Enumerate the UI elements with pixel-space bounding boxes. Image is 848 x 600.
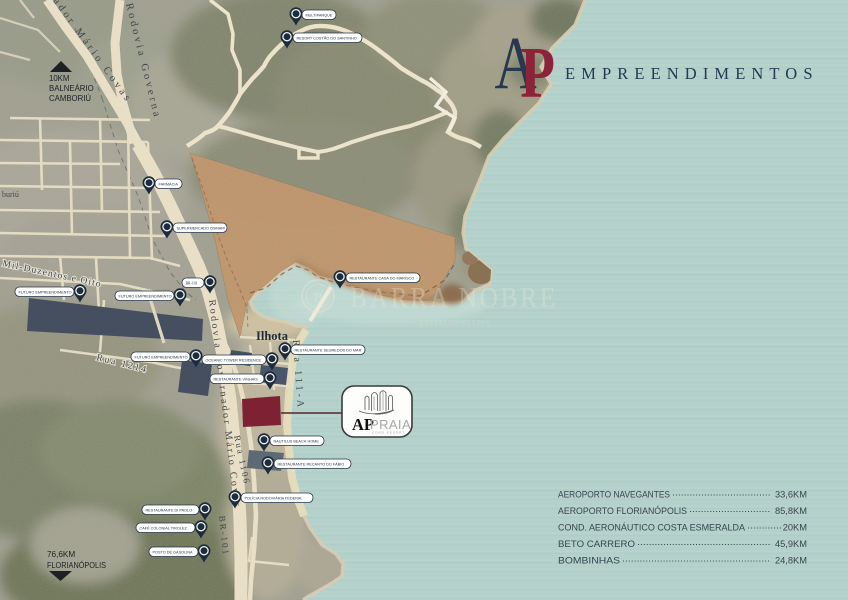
svg-text:RESTAURANTE CASA DO MARISCO: RESTAURANTE CASA DO MARISCO [350, 276, 415, 280]
svg-text:B: B [313, 291, 322, 306]
svg-text:SUPERMERCADO OSMARI: SUPERMERCADO OSMARI [177, 226, 226, 230]
svg-text:POLÍCIA RODOVIÁRIA FEDERAL: POLÍCIA RODOVIÁRIA FEDERAL [245, 496, 303, 500]
svg-text:BOMBINHAS: BOMBINHAS [558, 556, 620, 566]
svg-text:FUTURO EMPREENDIMENTO: FUTURO EMPREENDIMENTO [135, 355, 188, 359]
svg-text:FUTURO EMPREENDIMENTO: FUTURO EMPREENDIMENTO [119, 294, 172, 298]
svg-text:BALNEÁRIO: BALNEÁRIO [49, 84, 94, 93]
svg-text:24,8KM: 24,8KM [775, 556, 807, 566]
svg-text:20KM: 20KM [783, 523, 807, 533]
svg-text:BR-101: BR-101 [186, 281, 198, 285]
svg-text:FARMÁCIA: FARMÁCIA [159, 182, 179, 186]
svg-text:RESTAURANTE SEGREDOS DO MAR: RESTAURANTE SEGREDOS DO MAR [295, 348, 362, 352]
svg-text:POSTO DE GASOLINA: POSTO DE GASOLINA [153, 550, 193, 554]
svg-text:RESTAURANTE VINHAIS: RESTAURANTE VINHAIS [214, 377, 259, 381]
svg-text:FUTURO EMPREENDIMENTO: FUTURO EMPREENDIMENTO [19, 290, 72, 294]
svg-text:CAMBORIÚ: CAMBORIÚ [49, 94, 91, 103]
svg-text:OCEANIC TOWER RESIDENCE: OCEANIC TOWER RESIDENCE [206, 358, 262, 362]
svg-text:BARRA NOBRE: BARRA NOBRE [350, 282, 558, 314]
svg-text:45,9KM: 45,9KM [775, 539, 807, 549]
svg-text:AEROPORTO NAVEGANTES: AEROPORTO NAVEGANTES [558, 490, 670, 500]
svg-text:FLORIANÓPOLIS: FLORIANÓPOLIS [47, 560, 106, 570]
svg-text:CAFÉ COLONIAL TIROLEZ: CAFÉ COLONIAL TIROLEZ [140, 525, 188, 530]
svg-text:EMPREENDIMENTOS: EMPREENDIMENTOS [565, 64, 818, 83]
svg-text:33,6KM: 33,6KM [775, 490, 807, 500]
svg-text:10KM: 10KM [49, 74, 69, 83]
svg-text:P: P [520, 33, 555, 113]
svg-text:COND. AERONÁUTICO COSTA ESMERA: COND. AERONÁUTICO COSTA ESMERALDA [558, 523, 746, 533]
svg-text:EMPREENDIMENTOS: EMPREENDIMENTOS [420, 319, 490, 327]
svg-text:RESTAURANTE RECANTO DO FÁBIO: RESTAURANTE RECANTO DO FÁBIO [278, 462, 345, 466]
svg-text:85,8KM: 85,8KM [775, 506, 807, 516]
svg-text:buriú: buriú [2, 190, 19, 199]
svg-text:76,6KM: 76,6KM [47, 550, 75, 559]
svg-text:Ilhota: Ilhota [256, 329, 289, 343]
svg-text:RESORT COSTÃO DO SANTINHO: RESORT COSTÃO DO SANTINHO [297, 35, 357, 40]
svg-text:MULTIPARQUE: MULTIPARQUE [306, 13, 333, 17]
svg-text:NAUTILUS BEACH HOME: NAUTILUS BEACH HOME [274, 439, 320, 443]
svg-text:AEROPORTO FLORIANÓPOLIS: AEROPORTO FLORIANÓPOLIS [558, 506, 687, 516]
svg-text:RESTAURANTE DI PAOLO: RESTAURANTE DI PAOLO [146, 508, 193, 512]
svg-text:BETO CARRERO: BETO CARRERO [558, 539, 635, 549]
svg-text:COND RESORT: COND RESORT [372, 431, 405, 435]
